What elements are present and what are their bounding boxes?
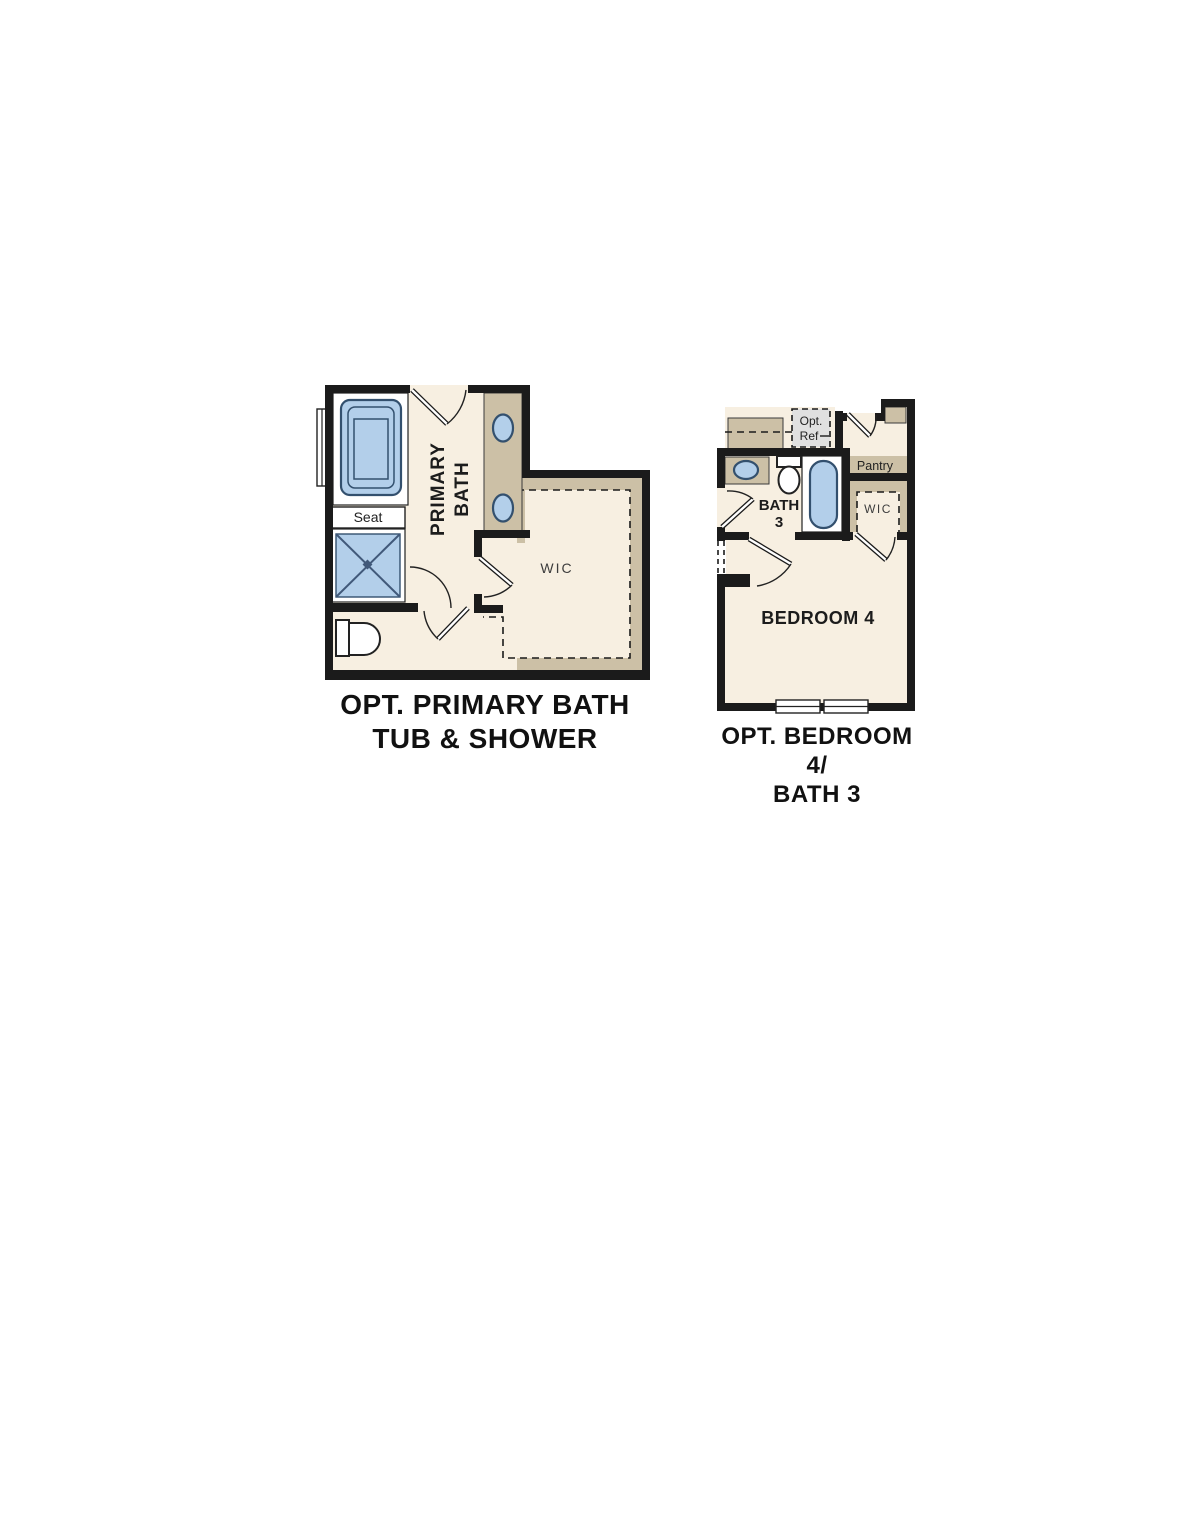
wall [717,532,749,540]
counter [728,418,783,449]
wall [325,385,333,680]
wall [468,385,530,393]
wall [325,385,410,393]
room-label-bath: BATH [452,461,473,516]
opt-ref-label-line2: Ref [800,429,819,443]
toilet-icon [779,467,800,494]
wall [842,448,850,541]
toilet-tank [777,456,801,467]
room-label-bath3-line1: BATH [759,497,800,514]
plan-title-line: OPT. BEDROOM 4/ [708,722,926,780]
wall [835,411,843,456]
wall [907,399,915,711]
wall [333,603,418,612]
plan-title-line: BATH 3 [708,780,926,809]
wall [842,473,915,481]
wall [795,532,853,540]
room-label-wic: WIC [864,502,892,516]
wall [522,385,530,478]
plan-title-line: OPT. PRIMARY BATH [315,688,655,722]
room-label-wic: WIC [540,560,573,576]
wall [482,605,503,613]
floor-plan-primary-bath: Seat PRIMARY BATH [315,380,660,690]
room-label-primary: PRIMARY [428,442,449,536]
wall [881,399,885,421]
sink-icon [493,495,513,522]
plan-title-primary-bath: OPT. PRIMARY BATH TUB & SHOWER [315,688,655,756]
tub-icon [810,461,837,528]
toilet-icon [349,623,380,655]
corner-shelf-block [885,407,906,423]
wall [897,532,915,540]
wall [642,470,650,680]
toilet-tank [336,620,349,656]
wall [474,530,482,557]
wall [480,530,530,538]
seat-label: Seat [354,509,383,525]
room-label-bedroom4: BEDROOM 4 [761,608,875,628]
plan-title-line: TUB & SHOWER [315,722,655,756]
pantry-label: Pantry [857,459,894,473]
floor-plan-bedroom4-bath3: Opt. Ref Pantry WIC [710,390,922,716]
wall [474,594,482,613]
opt-ref-label-line1: Opt. [800,414,823,428]
sink-icon [493,415,513,442]
wall [717,448,850,456]
floor-plan-page: { "document": { "background": "#ffffff",… [0,0,1182,1529]
wall [325,670,650,680]
sink-icon [734,461,758,479]
wall [522,470,650,478]
room-label-bath3-line2: 3 [775,514,783,531]
wall [717,574,725,711]
tub-icon [341,400,401,495]
wall [717,574,750,587]
plan-title-bedroom4-bath3: OPT. BEDROOM 4/ BATH 3 [708,722,926,809]
